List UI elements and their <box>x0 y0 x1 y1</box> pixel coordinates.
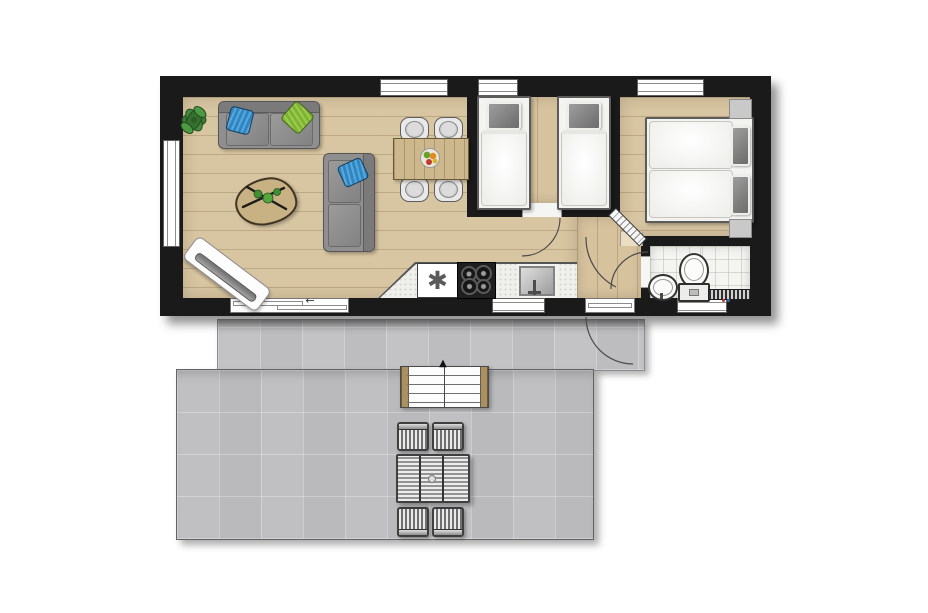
coffee-table-decor <box>243 187 286 209</box>
floor-plan: ▲ ← <box>0 0 928 613</box>
decor-overlay <box>0 0 928 613</box>
door-arc-bedroom-twin <box>522 218 560 256</box>
door-arc-entry <box>586 317 633 364</box>
door-arc-bedroom-double <box>586 237 616 287</box>
plant-icon <box>179 104 208 135</box>
door-arc-bathroom <box>611 252 648 289</box>
fruit-bowl-icon <box>421 149 440 168</box>
